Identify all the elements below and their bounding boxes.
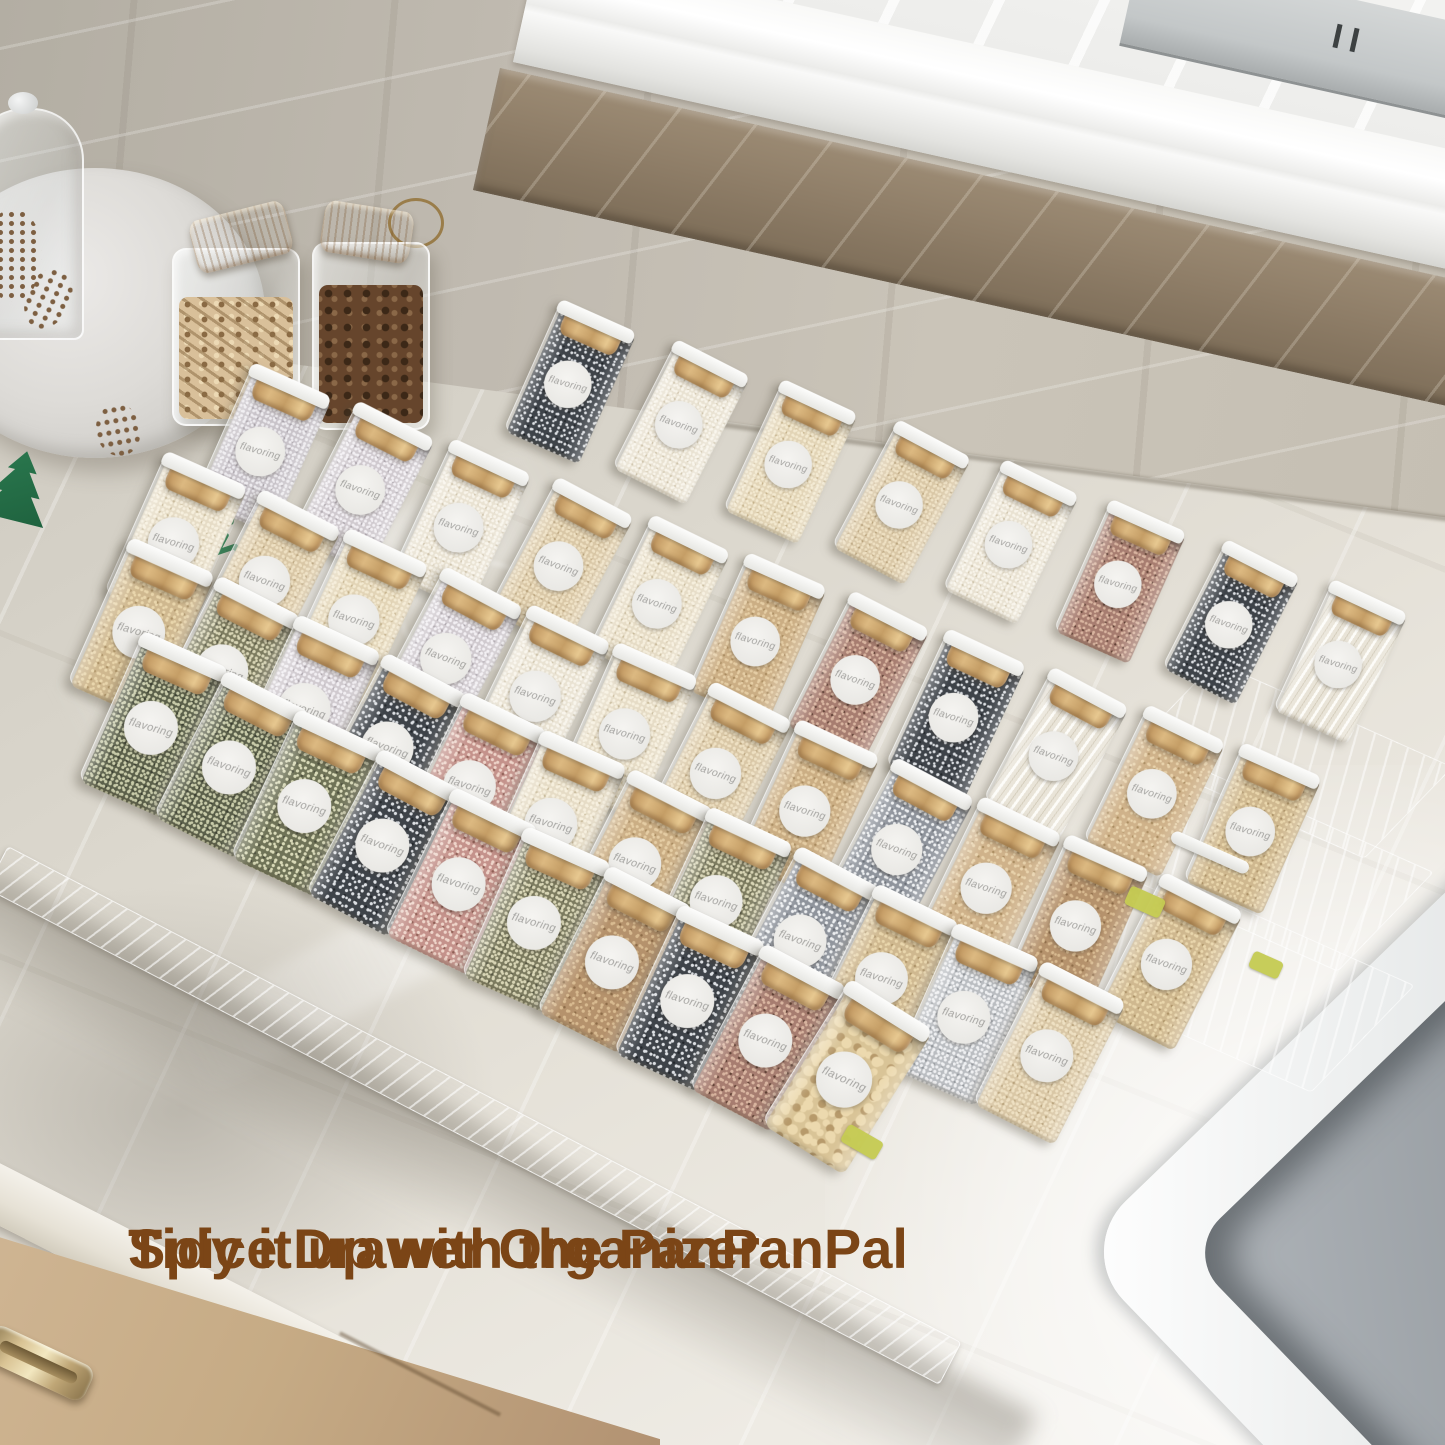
headline-line2: Spice Drawer Organizer: [128, 1206, 760, 1292]
product-scene: flavoringflavoringflavoringflavoringflav…: [0, 0, 1445, 1445]
